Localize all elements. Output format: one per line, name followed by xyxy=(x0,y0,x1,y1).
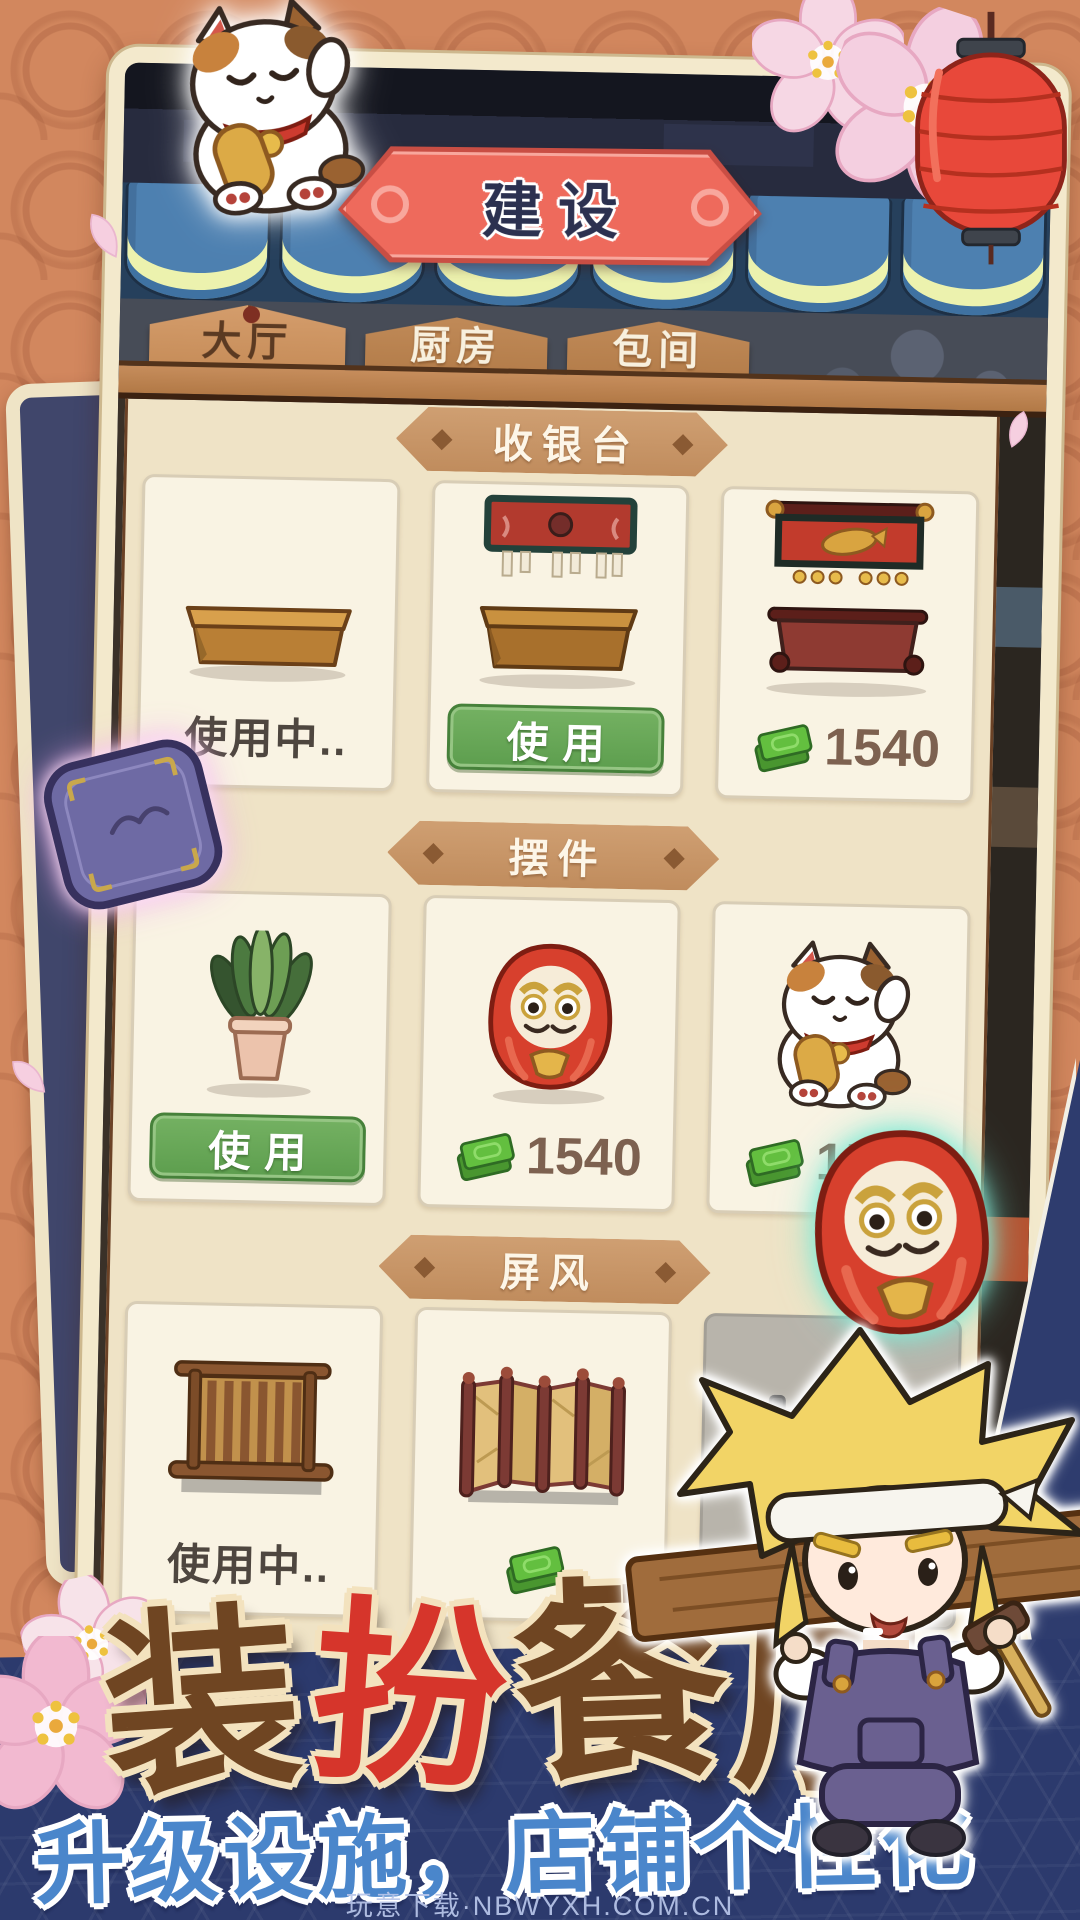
builder-character xyxy=(610,1322,1080,1920)
item-price: 1540 xyxy=(718,695,972,800)
section-header-cashier: 收银台 xyxy=(395,406,728,477)
daruma-art xyxy=(422,898,678,1109)
diamond-icon xyxy=(654,1261,675,1282)
use-button[interactable]: 使用 xyxy=(148,1112,366,1183)
section-header-screens: 屏风 xyxy=(378,1234,711,1305)
game-screen: 大厅 厨房 包间 收银台 xyxy=(0,0,1080,1920)
noren-counter-art xyxy=(431,483,687,694)
money-icon xyxy=(451,1126,518,1185)
red-lantern-icon xyxy=(898,10,1080,278)
diamond-icon xyxy=(422,842,443,863)
item-card-noren-counter[interactable]: 使用 xyxy=(426,480,690,797)
cashier-row: 使用中.. xyxy=(136,474,979,803)
use-button[interactable]: 使用 xyxy=(447,703,665,774)
promo-title-char: 装 xyxy=(97,1599,306,1808)
zabuton-cushion-item[interactable] xyxy=(20,658,242,974)
basic-counter-art xyxy=(141,477,397,688)
lucky-cat-art xyxy=(712,904,968,1115)
item-card-daruma[interactable]: 1540 xyxy=(417,895,681,1212)
promo-title-char: 扮 xyxy=(304,1593,513,1802)
diamond-icon xyxy=(413,1256,434,1277)
diamond-icon xyxy=(672,434,693,455)
page-title: 建设 xyxy=(466,162,635,251)
build-title-banner: 建设 xyxy=(337,146,762,266)
awning-flap xyxy=(744,195,893,316)
item-price: 1540 xyxy=(420,1104,674,1209)
diamond-icon xyxy=(663,848,684,869)
deluxe-counter-art xyxy=(720,489,976,700)
banner-face: 建设 xyxy=(342,151,757,261)
wooden-screen-art xyxy=(124,1304,380,1515)
section-header-ornaments: 摆件 xyxy=(387,820,720,891)
money-icon xyxy=(750,717,817,776)
diamond-icon xyxy=(431,429,452,450)
item-card-deluxe-counter[interactable]: 1540 xyxy=(715,486,979,803)
item-card-wooden-screen[interactable]: 使用中.. xyxy=(119,1301,383,1618)
